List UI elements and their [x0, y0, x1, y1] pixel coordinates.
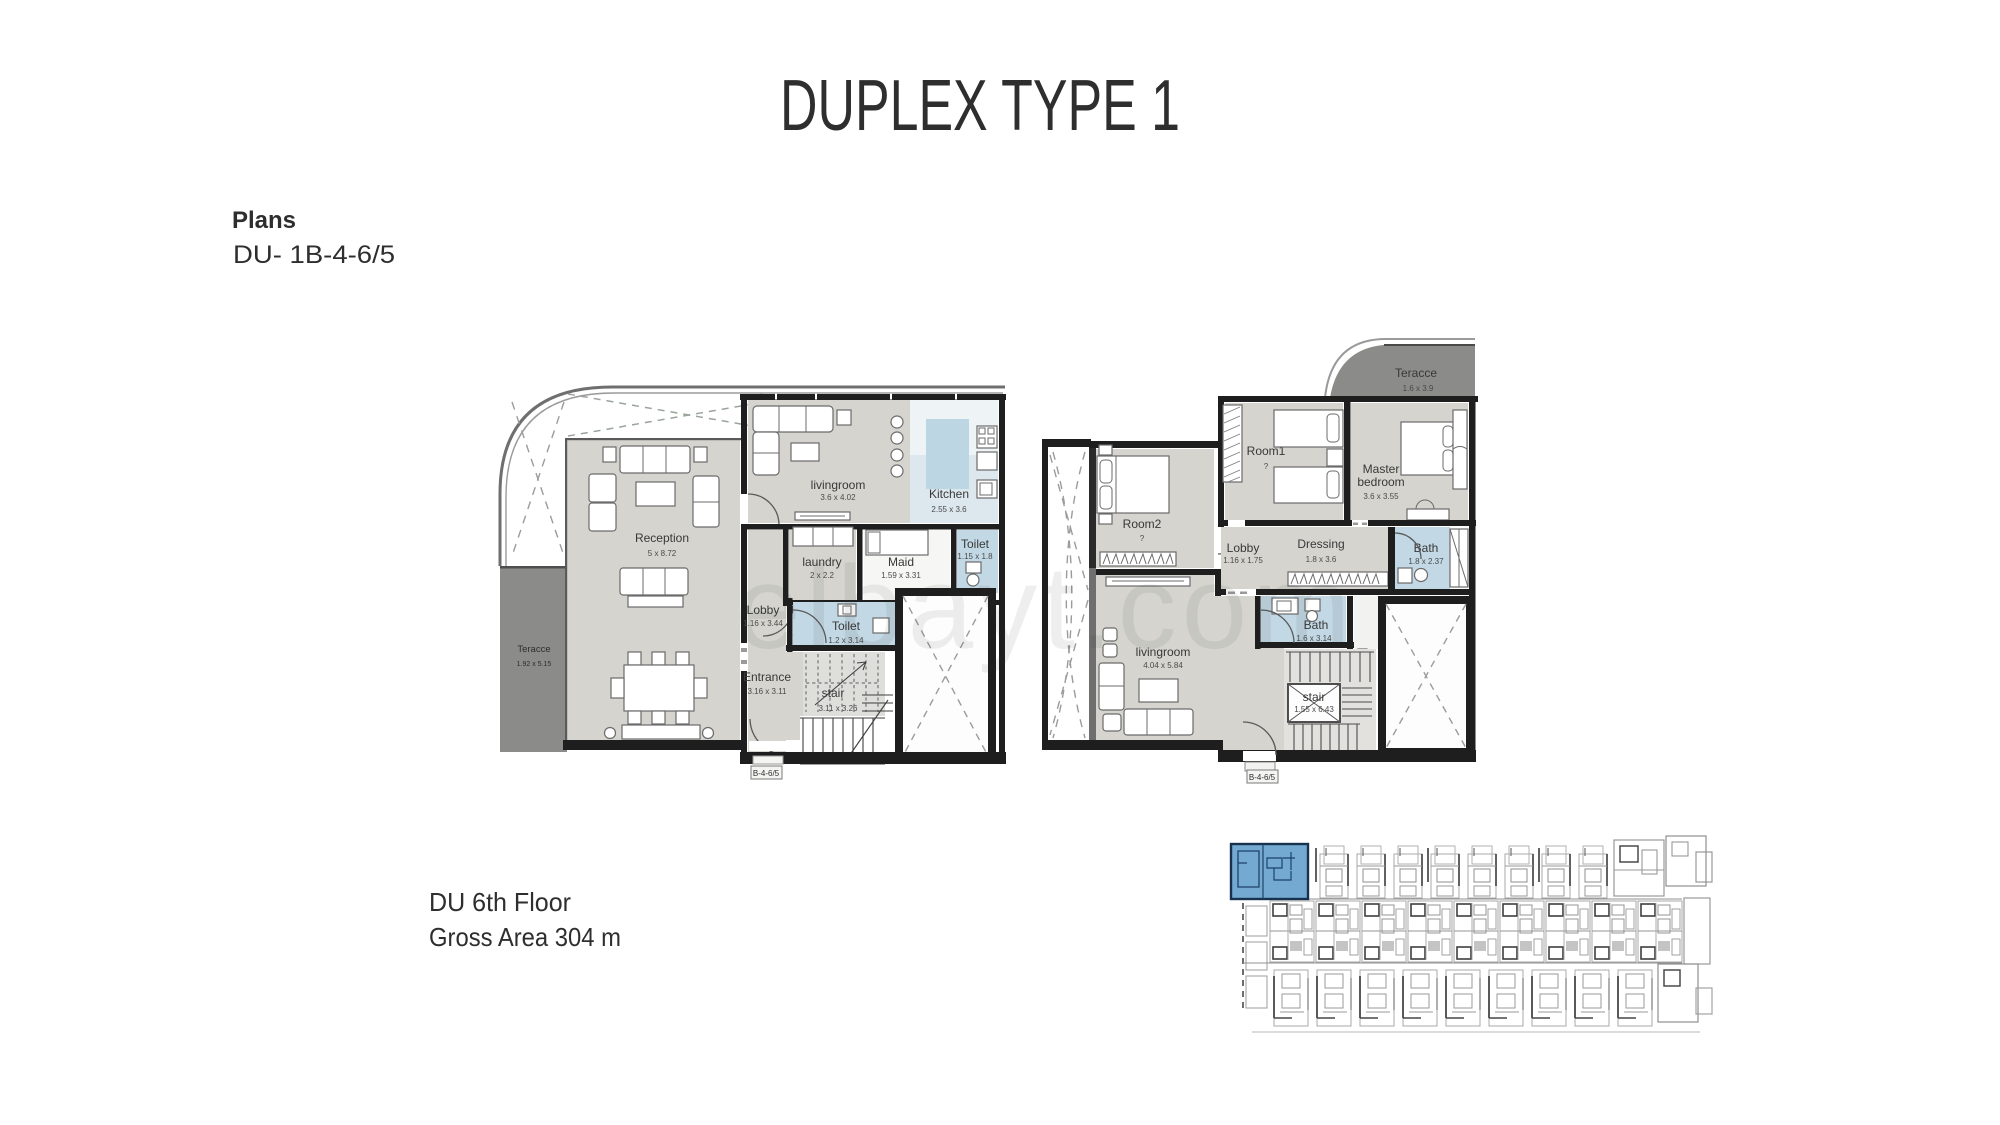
svg-text:1.6 x 3.9: 1.6 x 3.9	[1403, 384, 1434, 393]
svg-text:stair: stair	[822, 686, 845, 700]
svg-text:B-4-6/5: B-4-6/5	[1249, 773, 1276, 782]
svg-text:1.92 x 5.15: 1.92 x 5.15	[517, 661, 552, 668]
svg-text:Gross Area 304 m: Gross Area 304 m	[429, 922, 621, 952]
svg-text:B-4-6/5: B-4-6/5	[753, 769, 780, 778]
svg-text:1.55 x 6.43: 1.55 x 6.43	[1294, 705, 1334, 714]
svg-text:?: ?	[1264, 462, 1269, 471]
svg-text:3.6 x 4.02: 3.6 x 4.02	[820, 493, 856, 502]
svg-text:2.55 x 3.6: 2.55 x 3.6	[931, 505, 967, 514]
svg-text:Kitchen: Kitchen	[929, 487, 969, 501]
svg-text:Room2: Room2	[1123, 517, 1162, 531]
svg-text:DU- 1B-4-6/5: DU- 1B-4-6/5	[233, 241, 395, 269]
svg-text:DU 6th Floor: DU 6th Floor	[429, 887, 571, 917]
svg-text:Teracce: Teracce	[517, 644, 550, 655]
svg-text:DUPLEX TYPE 1: DUPLEX TYPE 1	[780, 66, 1180, 146]
svg-text:Bath: Bath	[1414, 541, 1439, 555]
svg-text:elbayt.com: elbayt.com	[735, 542, 1356, 674]
svg-text:3.16 x 3.11: 3.16 x 3.11	[748, 687, 788, 696]
svg-text:stair: stair	[1303, 690, 1326, 704]
svg-text:1.8 x 2.37: 1.8 x 2.37	[1408, 557, 1444, 566]
svg-text:3.11 x 3.26: 3.11 x 3.26	[819, 704, 859, 713]
svg-text:Teracce: Teracce	[1395, 366, 1437, 380]
svg-text:5 x 8.72: 5 x 8.72	[648, 549, 677, 558]
svg-text:Plans: Plans	[232, 207, 296, 234]
svg-text:bedroom: bedroom	[1357, 475, 1404, 489]
svg-text:3.6 x 3.55: 3.6 x 3.55	[1363, 492, 1399, 501]
svg-text:Master: Master	[1363, 462, 1400, 476]
svg-text:Reception: Reception	[635, 531, 689, 545]
svg-text:livingroom: livingroom	[811, 478, 866, 492]
